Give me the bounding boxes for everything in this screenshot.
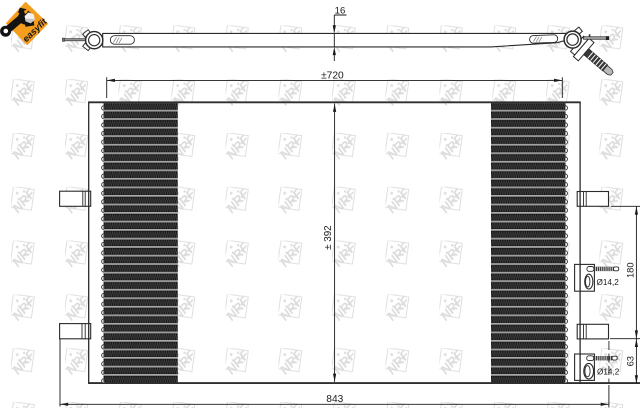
svg-text:843: 843: [326, 394, 343, 405]
svg-text:Ø14,2: Ø14,2: [597, 368, 620, 377]
svg-text:±720: ±720: [321, 71, 344, 82]
svg-text:Ø14,2: Ø14,2: [597, 278, 620, 287]
svg-text:63: 63: [625, 356, 636, 366]
svg-text:180: 180: [625, 262, 636, 278]
svg-text:± 392: ± 392: [323, 225, 334, 249]
